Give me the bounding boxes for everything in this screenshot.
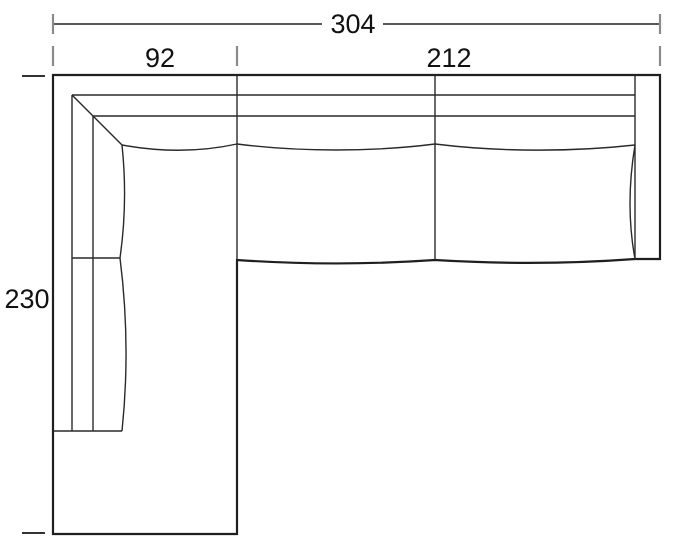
armrest-pillow-curve (630, 145, 635, 259)
sofa-plan-canvas: 304 92 212 230 (0, 0, 675, 539)
back-pillow-wave-curve (122, 144, 635, 150)
overall-width-label: 304 (330, 9, 375, 39)
sofa-outer-edge (53, 75, 660, 534)
chaise-width-label: 92 (145, 43, 175, 73)
corner-miter-line (72, 95, 122, 145)
chaise-upper-pillow-curve (120, 145, 125, 258)
dimension-section-widths: 92 212 (53, 43, 660, 73)
sofa-inner-structure (53, 75, 635, 431)
sofa-plan-drawing: 304 92 212 230 (0, 0, 675, 539)
dimension-overall-width: 304 (53, 9, 660, 39)
overall-depth-label: 230 (4, 284, 49, 314)
sofa-outline (53, 75, 660, 534)
sofa-section-width-label: 212 (426, 43, 471, 73)
chaise-lower-pillow-curve (120, 258, 126, 431)
dimension-overall-depth: 230 (4, 76, 49, 533)
